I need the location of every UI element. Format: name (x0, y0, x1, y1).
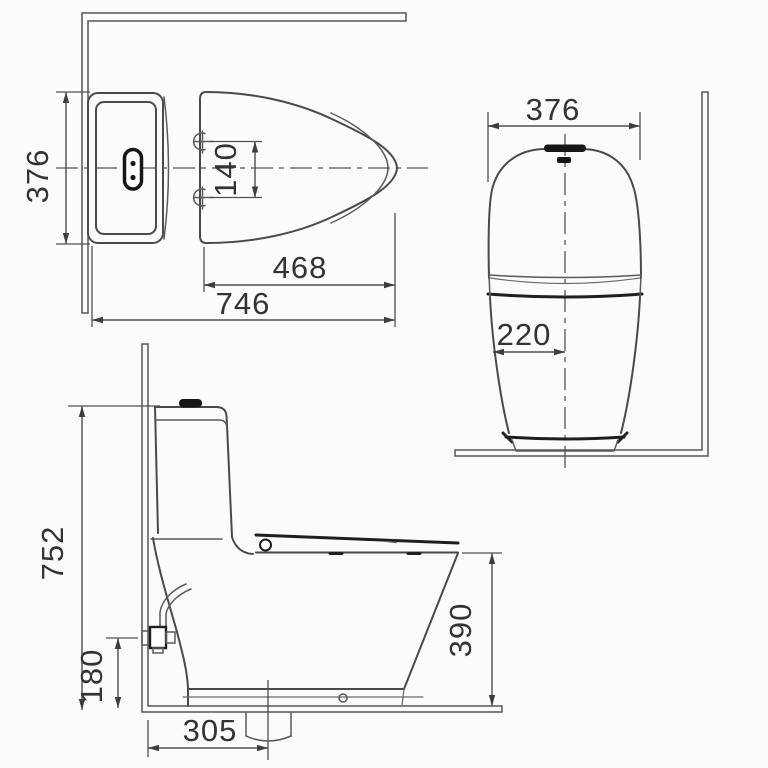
side-flush-button (179, 399, 202, 408)
dimension-plan-overall-length: 746 (92, 246, 395, 327)
dimension-label: 752 (35, 526, 70, 581)
side-tank-front-corner (232, 537, 253, 554)
side-tank-lid-bottom (156, 420, 227, 425)
dimension-side-inlet-height: 180 (74, 638, 138, 708)
dimension-side-rim-height: 390 (443, 553, 502, 706)
front-tank-band-top (489, 275, 641, 278)
plan-flush-button-dot-bottom (130, 175, 135, 180)
front-band-side-left (489, 275, 490, 297)
dimension-label: 140 (208, 142, 243, 197)
dimension-label: 376 (20, 149, 55, 204)
dimension-label: 390 (443, 603, 478, 658)
front-view: 376 220 (455, 92, 708, 470)
dimension-label: 468 (273, 250, 328, 285)
technical-drawing: 376 140 468 746 (0, 0, 768, 768)
plan-view: 376 140 468 746 (20, 13, 428, 327)
dimension-front-tank-width: 376 (488, 92, 640, 182)
dimension-front-edge-to-centerline: 220 (493, 317, 565, 352)
side-tank-front (227, 425, 232, 537)
side-view: 752 180 390 305 (35, 344, 502, 760)
dimension-label: 376 (526, 92, 581, 127)
side-seat-hinge (260, 540, 271, 551)
dimension-plan-hinge-spacing: 140 (208, 142, 262, 198)
dimension-label: 220 (497, 317, 552, 352)
side-base-bolt-cap (339, 694, 347, 702)
side-tank-lid (155, 407, 227, 425)
side-seat-lid-top (256, 535, 458, 543)
dimension-side-drain-setout: 305 (148, 680, 268, 760)
front-lid-latch (557, 157, 571, 163)
side-seat-notch (388, 542, 396, 543)
front-bowl-side-right (621, 297, 640, 433)
side-bowl-back (153, 538, 188, 706)
side-inlet-valve (142, 627, 175, 653)
front-flush-button (544, 145, 586, 153)
side-tank-back (155, 407, 158, 533)
toilet-technical-drawing-page: 376 140 468 746 (0, 0, 768, 768)
dimension-plan-overall-width: 376 (20, 92, 90, 244)
front-band-side-right (640, 275, 641, 297)
plan-flush-button (125, 150, 142, 190)
dimension-label: 180 (74, 649, 109, 704)
dimension-label: 746 (216, 286, 271, 321)
dimension-label: 305 (183, 713, 238, 748)
plan-flush-button-dot-top (130, 161, 135, 166)
